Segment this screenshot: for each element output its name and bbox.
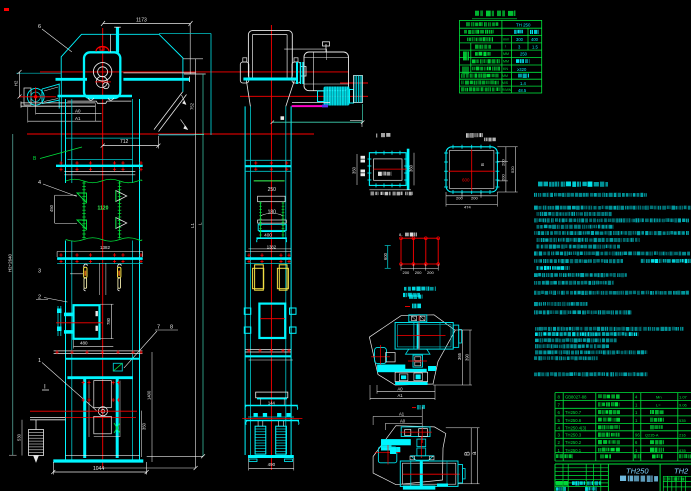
svg-text:7: 7 [157,325,160,331]
svg-text:TH2: TH2 [674,467,689,476]
svg-text:4: 4 [38,180,41,186]
svg-text:520: 520 [510,166,515,173]
svg-text:360: 360 [408,164,413,172]
svg-text:H2: H2 [14,80,19,86]
svg-text:1173: 1173 [136,18,147,24]
svg-text:600: 600 [462,178,470,183]
svg-text:KN: KN [503,67,508,71]
svg-text:MM: MM [503,60,509,64]
svg-text:1382: 1382 [100,245,111,250]
svg-text:MM: MM [502,74,508,78]
svg-text:A0: A0 [400,418,406,423]
svg-text:200: 200 [427,270,434,275]
svg-text:MM: MM [503,52,509,56]
svg-text:1120: 1120 [98,206,109,212]
svg-text:535: 535 [679,418,686,423]
svg-text:200: 200 [403,270,410,275]
svg-text:350: 350 [141,422,146,430]
svg-text:8: 8 [170,325,173,331]
svg-text:B: B [480,163,485,166]
svg-text:L1: L1 [190,222,195,228]
svg-text:9.06: 9.06 [679,402,688,407]
svg-text:400: 400 [531,37,539,42]
svg-text:216: 216 [679,433,686,438]
svg-text:≥320: ≥320 [517,67,527,72]
svg-text:mm: mm [503,37,509,41]
svg-text:1382: 1382 [267,244,277,249]
svg-text:200: 200 [500,174,505,181]
svg-text:474: 474 [464,204,471,209]
svg-text:450: 450 [49,204,54,212]
svg-text:200: 200 [456,196,463,201]
svg-text:A0: A0 [397,386,403,391]
svg-text:835: 835 [679,448,686,453]
svg-text:A1: A1 [399,411,405,416]
svg-text:TH250.7: TH250.7 [565,410,582,415]
svg-text:A1: A1 [397,393,403,398]
svg-text:Mn: Mn [656,395,662,400]
svg-text:200: 200 [500,159,505,166]
svg-text:48.5: 48.5 [518,88,527,93]
svg-text:390: 390 [465,353,470,361]
svg-text:A1: A1 [75,116,81,121]
svg-text:300: 300 [516,37,524,42]
svg-text:TH250.4(3): TH250.4(3) [565,425,587,430]
svg-text:1400: 1400 [146,390,151,400]
svg-text:400: 400 [264,232,272,237]
svg-text:A0: A0 [75,108,81,113]
svg-text:TH250.2: TH250.2 [565,440,582,445]
svg-text:1.5: 1.5 [532,44,538,49]
svg-text:TH250: TH250 [626,467,649,476]
svg-text:GB8027-88: GB8027-88 [565,395,587,400]
svg-text:L=: L= [656,402,661,407]
svg-text:144: 144 [268,400,276,405]
svg-text:M/S: M/S [502,81,509,85]
svg-text:1.4: 1.4 [520,81,526,86]
svg-text:6: 6 [38,24,41,30]
svg-text:180: 180 [268,210,277,216]
svg-text:1.07: 1.07 [679,395,688,400]
svg-text:3: 3 [38,269,41,275]
svg-text:490: 490 [268,462,276,467]
svg-text:TH250.1: TH250.1 [565,448,582,453]
svg-text:365: 365 [457,352,462,360]
svg-text:600: 600 [383,252,388,260]
svg-text:TH250.3: TH250.3 [565,433,582,438]
svg-text:96: 96 [635,433,640,438]
svg-text:R/MIN: R/MIN [502,88,512,92]
svg-text:TH 250: TH 250 [516,22,531,27]
svg-text:H2+2640: H2+2640 [7,253,12,272]
svg-text:B: B [465,451,472,456]
svg-text:530: 530 [17,433,22,441]
svg-text:1044: 1044 [93,466,104,472]
svg-text:TH250.6: TH250.6 [565,418,582,423]
svg-text:200: 200 [471,196,478,201]
svg-text:752: 752 [190,102,195,110]
svg-text:350: 350 [352,166,357,174]
svg-text:250: 250 [520,52,528,57]
svg-text:1: 1 [38,358,41,364]
svg-text:Q235-A: Q235-A [645,433,659,438]
svg-text:712: 712 [120,139,129,145]
svg-text:480: 480 [80,340,88,345]
svg-text:250: 250 [268,187,277,193]
svg-text:200: 200 [415,270,422,275]
svg-text:780: 780 [106,317,111,325]
